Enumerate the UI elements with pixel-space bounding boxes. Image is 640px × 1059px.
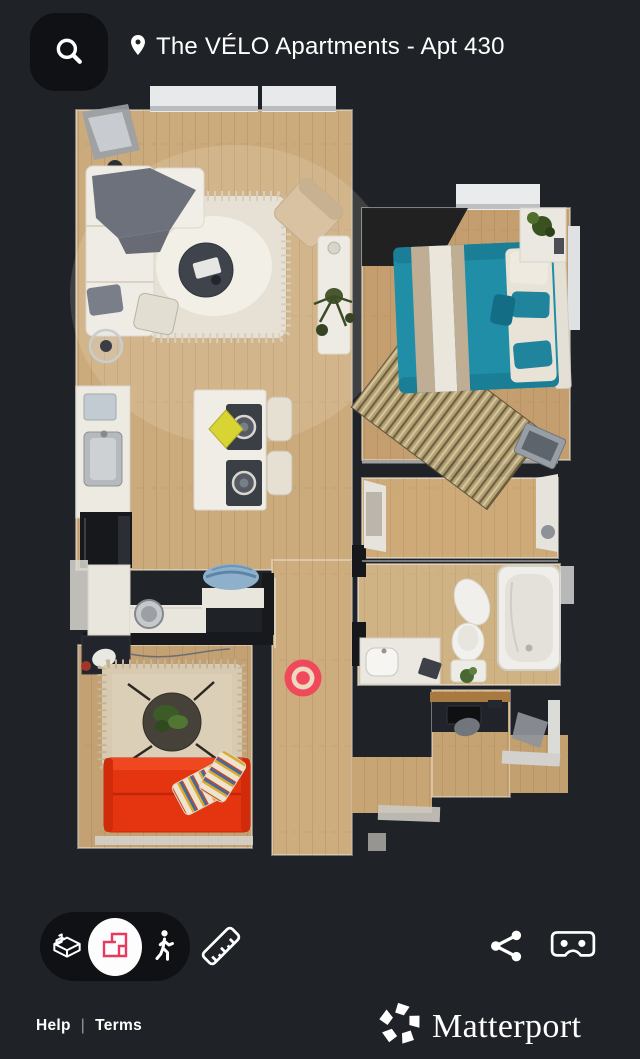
footer-divider: | (81, 1017, 85, 1035)
vr-headset-icon (549, 929, 597, 966)
dollhouse-3d-icon (48, 926, 86, 967)
den-furniture (81, 636, 250, 832)
floorplan-icon (100, 930, 130, 963)
share-nodes-icon (486, 926, 528, 969)
person-walking-icon (145, 927, 181, 966)
map-pin-icon (126, 32, 150, 63)
ruler-icon (196, 921, 246, 974)
current-position-marker[interactable] (285, 660, 322, 697)
footer-links: Help | Terms (36, 1017, 142, 1035)
floorplan-view-button[interactable] (88, 918, 142, 976)
search-icon (52, 34, 86, 71)
share-button[interactable] (484, 925, 530, 969)
vr-button[interactable] (548, 927, 598, 967)
brand-wordmark: Matterport (432, 1008, 581, 1046)
dollhouse-view-button[interactable] (47, 918, 88, 976)
measure-button[interactable] (196, 922, 246, 972)
walk-view-button[interactable] (142, 918, 183, 976)
floorplan-map[interactable] (0, 0, 640, 900)
view-mode-switcher (40, 912, 190, 981)
title-bar: The VÉLO Apartments - Apt 430 (126, 30, 505, 64)
matterport-brand[interactable]: Matterport (376, 1000, 581, 1053)
terms-link[interactable]: Terms (95, 1017, 142, 1035)
room-closet[interactable] (362, 478, 558, 558)
matterport-pinwheel-icon (376, 1000, 424, 1053)
help-link[interactable]: Help (36, 1017, 71, 1035)
matterport-viewer: The VÉLO Apartments - Apt 430 (0, 0, 640, 1059)
search-button[interactable] (30, 13, 108, 91)
tour-title: The VÉLO Apartments - Apt 430 (156, 33, 505, 61)
